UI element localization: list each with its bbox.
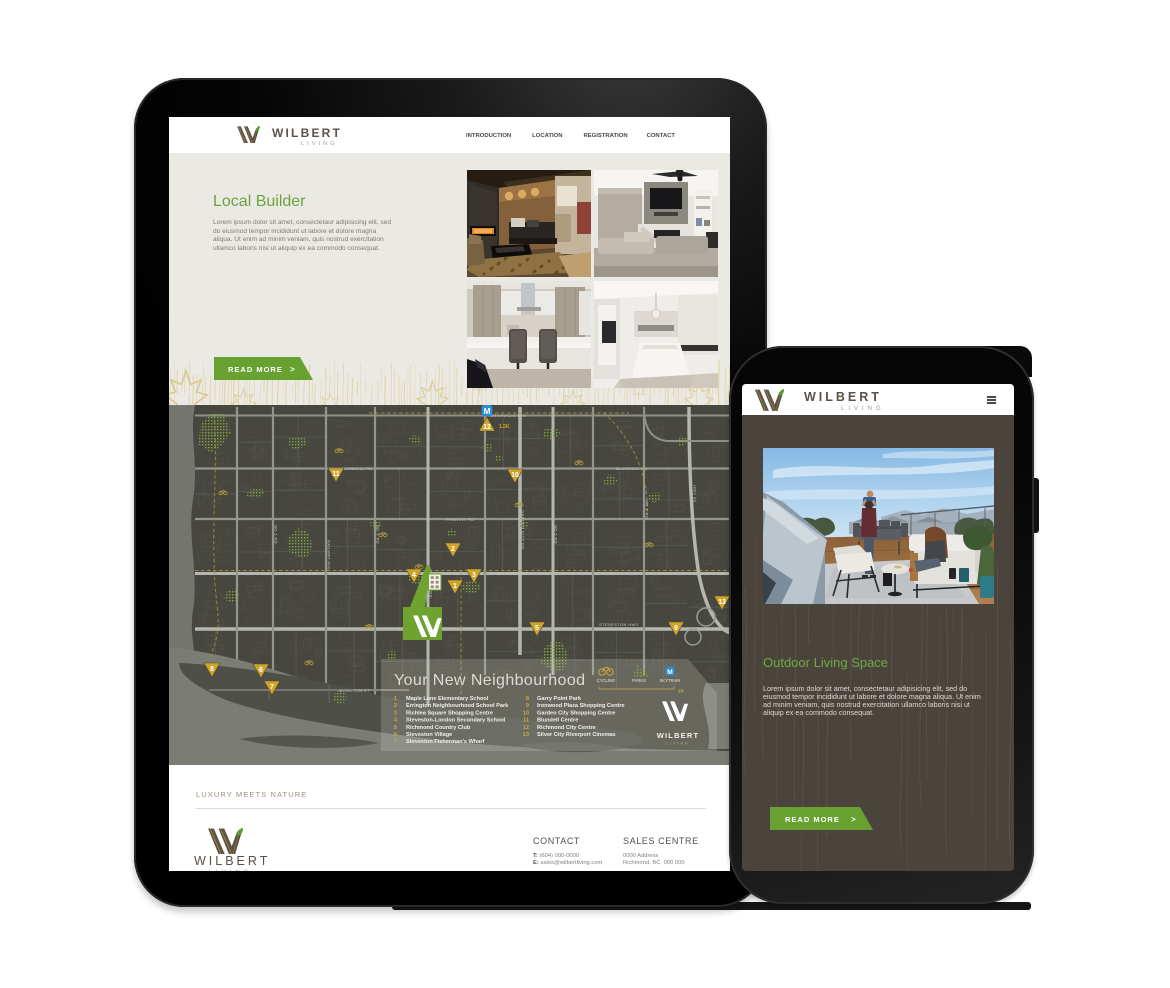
svg-text:8: 8 <box>210 666 214 673</box>
svg-text:Steveston Fisherman's Wharf: Steveston Fisherman's Wharf <box>406 739 485 745</box>
svg-text:Garry Point Park: Garry Point Park <box>537 696 582 702</box>
svg-text:READ MORE: READ MORE <box>785 815 840 824</box>
svg-text:13: 13 <box>523 732 529 738</box>
svg-text:BLUNDELL RD: BLUNDELL RD <box>616 466 648 471</box>
svg-text:NO 2 RD: NO 2 RD <box>376 525 381 544</box>
svg-text:5: 5 <box>394 725 397 731</box>
svg-text:4: 4 <box>412 572 416 579</box>
svg-text:7: 7 <box>270 684 274 691</box>
svg-text:FRANCIS RD: FRANCIS RD <box>446 517 474 522</box>
svg-text:SKYTRAIN: SKYTRAIN <box>660 678 681 683</box>
svg-text:Silver City Riverport Cinemas: Silver City Riverport Cinemas <box>537 732 616 738</box>
svg-text:Steveston-London Secondary Sch: Steveston-London Secondary School <box>406 718 506 724</box>
svg-text:2: 2 <box>394 703 397 709</box>
svg-text:1.5K: 1.5K <box>499 424 510 430</box>
svg-text:9: 9 <box>674 625 678 632</box>
svg-text:Errington Neighbourhood School: Errington Neighbourhood School Park <box>406 703 509 709</box>
svg-text:1: 1 <box>453 583 457 590</box>
svg-text:NO 4 RD: NO 4 RD <box>645 500 650 519</box>
svg-text:Steveston Village: Steveston Village <box>406 732 452 738</box>
svg-text:M: M <box>484 407 491 416</box>
svg-text:3: 3 <box>394 710 397 716</box>
svg-text:STEVESTON HWY: STEVESTON HWY <box>599 622 639 627</box>
svg-text:HWY 99: HWY 99 <box>693 485 698 503</box>
svg-text:WILLIAMS RD: WILLIAMS RD <box>497 571 527 576</box>
svg-text:1K: 1K <box>678 689 685 694</box>
svg-text:11: 11 <box>523 718 529 724</box>
svg-text:6: 6 <box>259 667 263 674</box>
svg-text:Ironwood Plaza Shopping Centre: Ironwood Plaza Shopping Centre <box>537 703 625 709</box>
svg-text:WILBERT: WILBERT <box>657 731 700 740</box>
svg-text:Your New Neighbourhood: Your New Neighbourhood <box>394 672 585 689</box>
svg-text:9: 9 <box>526 703 529 709</box>
svg-text:Richmond Country Club: Richmond Country Club <box>406 725 471 731</box>
svg-text:READ MORE: READ MORE <box>228 365 283 374</box>
svg-text:RAILWAY AVE: RAILWAY AVE <box>327 540 332 570</box>
svg-text:10: 10 <box>511 472 519 479</box>
svg-text:1: 1 <box>394 696 397 702</box>
svg-text:BLUNDELL RD: BLUNDELL RD <box>341 466 373 471</box>
svg-text:NO 1 RD: NO 1 RD <box>274 525 279 544</box>
svg-text:12: 12 <box>483 424 491 431</box>
svg-text:NO 3 RD: NO 3 RD <box>554 525 559 544</box>
svg-text:M: M <box>667 669 673 676</box>
svg-text:WILLIAMS RD: WILLIAMS RD <box>288 571 318 576</box>
svg-text:13: 13 <box>718 599 726 606</box>
svg-text:LIVING: LIVING <box>666 742 690 746</box>
svg-text:11: 11 <box>332 471 340 478</box>
svg-text:>: > <box>851 815 856 824</box>
svg-text:PARKS: PARKS <box>632 678 646 683</box>
svg-text:12: 12 <box>523 725 529 731</box>
svg-text:2: 2 <box>451 546 455 553</box>
svg-text:6: 6 <box>394 732 397 738</box>
svg-text:GRANVILLE AVE: GRANVILLE AVE <box>490 413 526 418</box>
svg-text:8: 8 <box>526 696 529 702</box>
svg-text:>: > <box>290 365 295 374</box>
svg-text:5: 5 <box>535 625 539 632</box>
svg-text:10: 10 <box>523 710 529 716</box>
svg-text:Garden City Shopping Centre: Garden City Shopping Centre <box>537 710 615 716</box>
svg-text:Richlea Square Shopping Centre: Richlea Square Shopping Centre <box>406 710 493 716</box>
svg-text:CYCLING: CYCLING <box>597 678 616 683</box>
svg-text:7: 7 <box>394 739 397 745</box>
svg-text:Maple Lane Elementary School: Maple Lane Elementary School <box>406 696 489 702</box>
svg-text:MONCTON ST: MONCTON ST <box>339 688 370 693</box>
svg-text:Richmond City Centre: Richmond City Centre <box>537 725 596 731</box>
svg-text:3: 3 <box>472 572 476 579</box>
svg-text:GARDEN CITY RD: GARDEN CITY RD <box>521 510 526 550</box>
svg-text:Blundell Centre: Blundell Centre <box>537 718 578 724</box>
